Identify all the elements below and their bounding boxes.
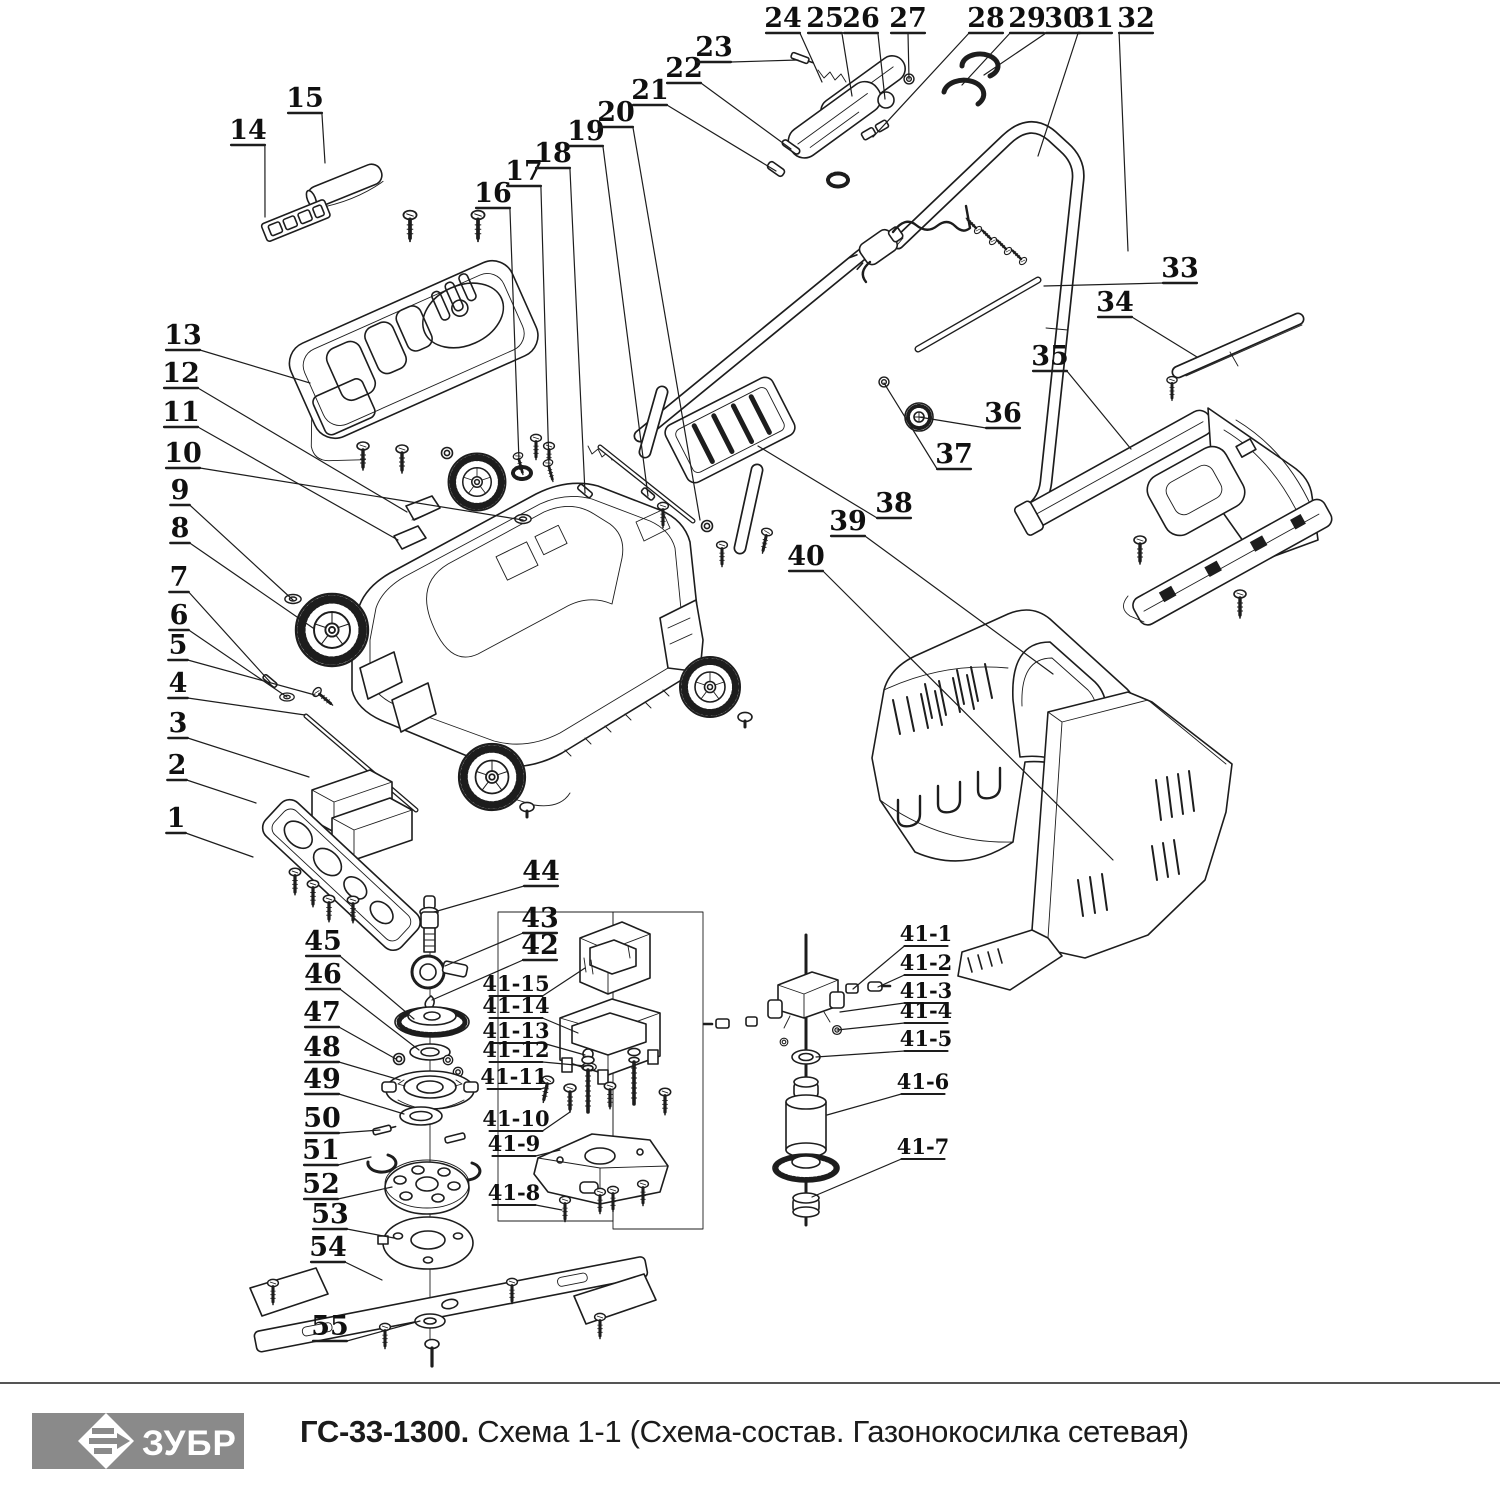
svg-text:26: 26 <box>842 3 880 34</box>
part-ring-43 <box>412 956 468 988</box>
part-clamp-lever-29-30 <box>944 54 998 104</box>
svg-text:39: 39 <box>829 506 867 537</box>
svg-text:38: 38 <box>875 488 913 519</box>
svg-text:9: 9 <box>171 475 190 506</box>
svg-text:41-2: 41-2 <box>900 950 953 975</box>
callout-15: 15 <box>286 83 325 163</box>
part-rear-cover-35 <box>1013 404 1335 628</box>
svg-text:52: 52 <box>302 1169 340 1200</box>
svg-text:10: 10 <box>164 438 202 469</box>
svg-text:54: 54 <box>309 1232 347 1263</box>
wheel-rear-left <box>449 454 506 511</box>
wheel-front-left <box>296 594 368 666</box>
part-spring-24 <box>818 70 846 82</box>
svg-text:12: 12 <box>162 358 200 389</box>
callout-23: 23 <box>695 32 798 63</box>
callout-32: 32 <box>1117 3 1155 251</box>
svg-text:41-10: 41-10 <box>482 1106 549 1131</box>
part-cover-strip-14-15 <box>261 161 387 242</box>
svg-text:44: 44 <box>522 856 560 887</box>
part-flap-38 <box>662 374 798 486</box>
svg-text:27: 27 <box>889 3 927 34</box>
callout-3: 3 <box>168 708 309 777</box>
callout-14: 14 <box>229 115 267 217</box>
svg-text:4: 4 <box>169 668 188 699</box>
svg-text:42: 42 <box>521 930 559 961</box>
svg-text:18: 18 <box>534 138 572 169</box>
svg-text:33: 33 <box>1161 253 1199 284</box>
svg-text:5: 5 <box>169 630 188 661</box>
part-disc-52 <box>385 1160 469 1214</box>
part-bolt-55 <box>415 1314 445 1366</box>
callout-34: 34 <box>1096 287 1197 357</box>
svg-text:41-14: 41-14 <box>482 993 549 1018</box>
callout-4: 4 <box>168 668 305 715</box>
page: 1234567891011121314151617181920212223242… <box>0 0 1500 1500</box>
svg-text:36: 36 <box>984 398 1022 429</box>
svg-text:23: 23 <box>695 32 733 63</box>
svg-text:15: 15 <box>286 83 324 114</box>
svg-text:2: 2 <box>168 750 187 781</box>
svg-text:8: 8 <box>171 513 190 544</box>
callout-18: 18 <box>534 138 585 493</box>
svg-text:25: 25 <box>806 3 844 34</box>
svg-text:13: 13 <box>164 320 202 351</box>
callout-50: 50 <box>303 1103 380 1134</box>
svg-text:34: 34 <box>1096 287 1134 318</box>
svg-text:41-1: 41-1 <box>900 921 953 946</box>
part-rotor-41-6 <box>773 1077 839 1182</box>
part-switch-housing <box>782 51 910 164</box>
part-stator-41-15 <box>580 922 650 994</box>
part-washer-49 <box>400 1107 442 1125</box>
exploded-diagram: 1234567891011121314151617181920212223242… <box>0 0 1500 1500</box>
callout-54: 54 <box>309 1232 382 1280</box>
svg-text:41-6: 41-6 <box>897 1069 950 1094</box>
svg-text:14: 14 <box>229 115 267 146</box>
part-clips-11-12 <box>394 496 440 549</box>
part-rotor-group <box>704 935 890 1225</box>
svg-text:3: 3 <box>169 708 188 739</box>
svg-text:37: 37 <box>935 439 973 470</box>
part-power-cord <box>847 206 970 282</box>
drawing-subtitle: Схема 1-1 (Схема-состав. Газонокосилка с… <box>469 1414 1189 1449</box>
callout-52: 52 <box>302 1169 392 1200</box>
part-motor-cover-13 <box>271 254 557 478</box>
part-bearing-41-7 <box>793 1193 819 1217</box>
callout-41-11: 41-11 <box>480 1064 548 1089</box>
part-screw-23 <box>791 52 815 66</box>
callout-22: 22 <box>665 53 791 149</box>
wheel-front-right <box>459 744 525 810</box>
svg-text:47: 47 <box>303 997 341 1028</box>
svg-text:28: 28 <box>967 3 1005 34</box>
part-ring-26 <box>878 92 894 108</box>
callout-41-9: 41-9 <box>488 1131 560 1156</box>
svg-text:50: 50 <box>303 1103 341 1134</box>
part-stator-group <box>534 922 671 1222</box>
part-disc-53 <box>378 1217 473 1269</box>
svg-text:7: 7 <box>170 562 189 593</box>
svg-text:21: 21 <box>631 75 669 106</box>
callout-1: 1 <box>166 803 253 857</box>
svg-text:6: 6 <box>170 600 189 631</box>
svg-text:11: 11 <box>162 397 200 428</box>
callout-41-6: 41-6 <box>827 1069 949 1115</box>
svg-text:51: 51 <box>302 1135 340 1166</box>
callout-2: 2 <box>167 750 256 803</box>
brand-name: ЗУБР <box>142 1424 237 1463</box>
svg-text:46: 46 <box>304 959 342 990</box>
svg-text:55: 55 <box>311 1311 349 1342</box>
brand-logo: ЗУБР <box>32 1413 244 1474</box>
svg-text:40: 40 <box>787 541 825 572</box>
svg-text:1: 1 <box>167 803 186 834</box>
drawing-title: ГС-33-1300. Схема 1-1 (Схема-состав. Газ… <box>300 1414 1189 1450</box>
svg-text:35: 35 <box>1031 341 1069 372</box>
callout-5: 5 <box>168 630 315 695</box>
wheel-rear-right <box>680 657 740 717</box>
svg-text:41-8: 41-8 <box>488 1180 541 1205</box>
svg-text:29: 29 <box>1008 3 1046 34</box>
zubr-logo-icon: ЗУБР <box>32 1413 244 1469</box>
svg-text:49: 49 <box>303 1064 341 1095</box>
part-grip-34 <box>1178 319 1302 376</box>
svg-text:41-4: 41-4 <box>900 998 953 1023</box>
svg-text:41-5: 41-5 <box>900 1026 953 1051</box>
callout-36: 36 <box>919 398 1022 429</box>
callout-41-10: 41-10 <box>482 1106 570 1131</box>
callout-41-15: 41-15 <box>482 968 585 996</box>
svg-text:31: 31 <box>1076 3 1114 34</box>
svg-text:45: 45 <box>304 926 342 957</box>
svg-text:32: 32 <box>1117 3 1155 34</box>
svg-text:41-9: 41-9 <box>488 1131 541 1156</box>
svg-text:20: 20 <box>597 97 635 128</box>
part-spindle-44 <box>420 896 438 952</box>
part-clutch-48 <box>382 1071 478 1109</box>
callout-51: 51 <box>302 1135 371 1166</box>
part-stator-housing-41-14 <box>560 999 660 1084</box>
svg-text:41-11: 41-11 <box>480 1064 547 1089</box>
svg-text:48: 48 <box>303 1032 341 1063</box>
svg-text:41-12: 41-12 <box>482 1037 549 1062</box>
model-number: ГС-33-1300. <box>300 1414 469 1449</box>
svg-text:24: 24 <box>764 3 802 34</box>
svg-text:53: 53 <box>311 1199 349 1230</box>
callout-8: 8 <box>170 513 313 628</box>
svg-text:41-7: 41-7 <box>897 1134 950 1159</box>
footer: ЗУБР ГС-33-1300. Схема 1-1 (Схема-состав… <box>0 1404 1500 1484</box>
callout-21: 21 <box>631 75 776 171</box>
